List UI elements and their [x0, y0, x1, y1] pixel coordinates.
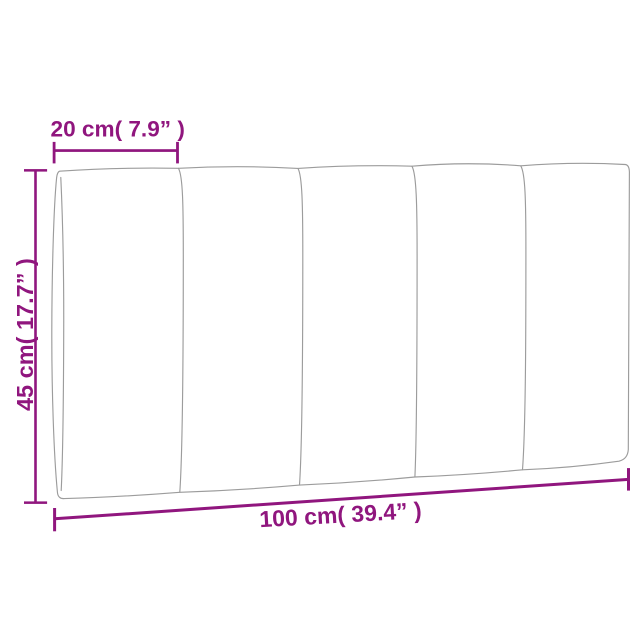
svg-text:20 cm( 7.9” ): 20 cm( 7.9” ) — [51, 117, 185, 142]
svg-text:45 cm( 17.7” ): 45 cm( 17.7” ) — [12, 258, 38, 411]
